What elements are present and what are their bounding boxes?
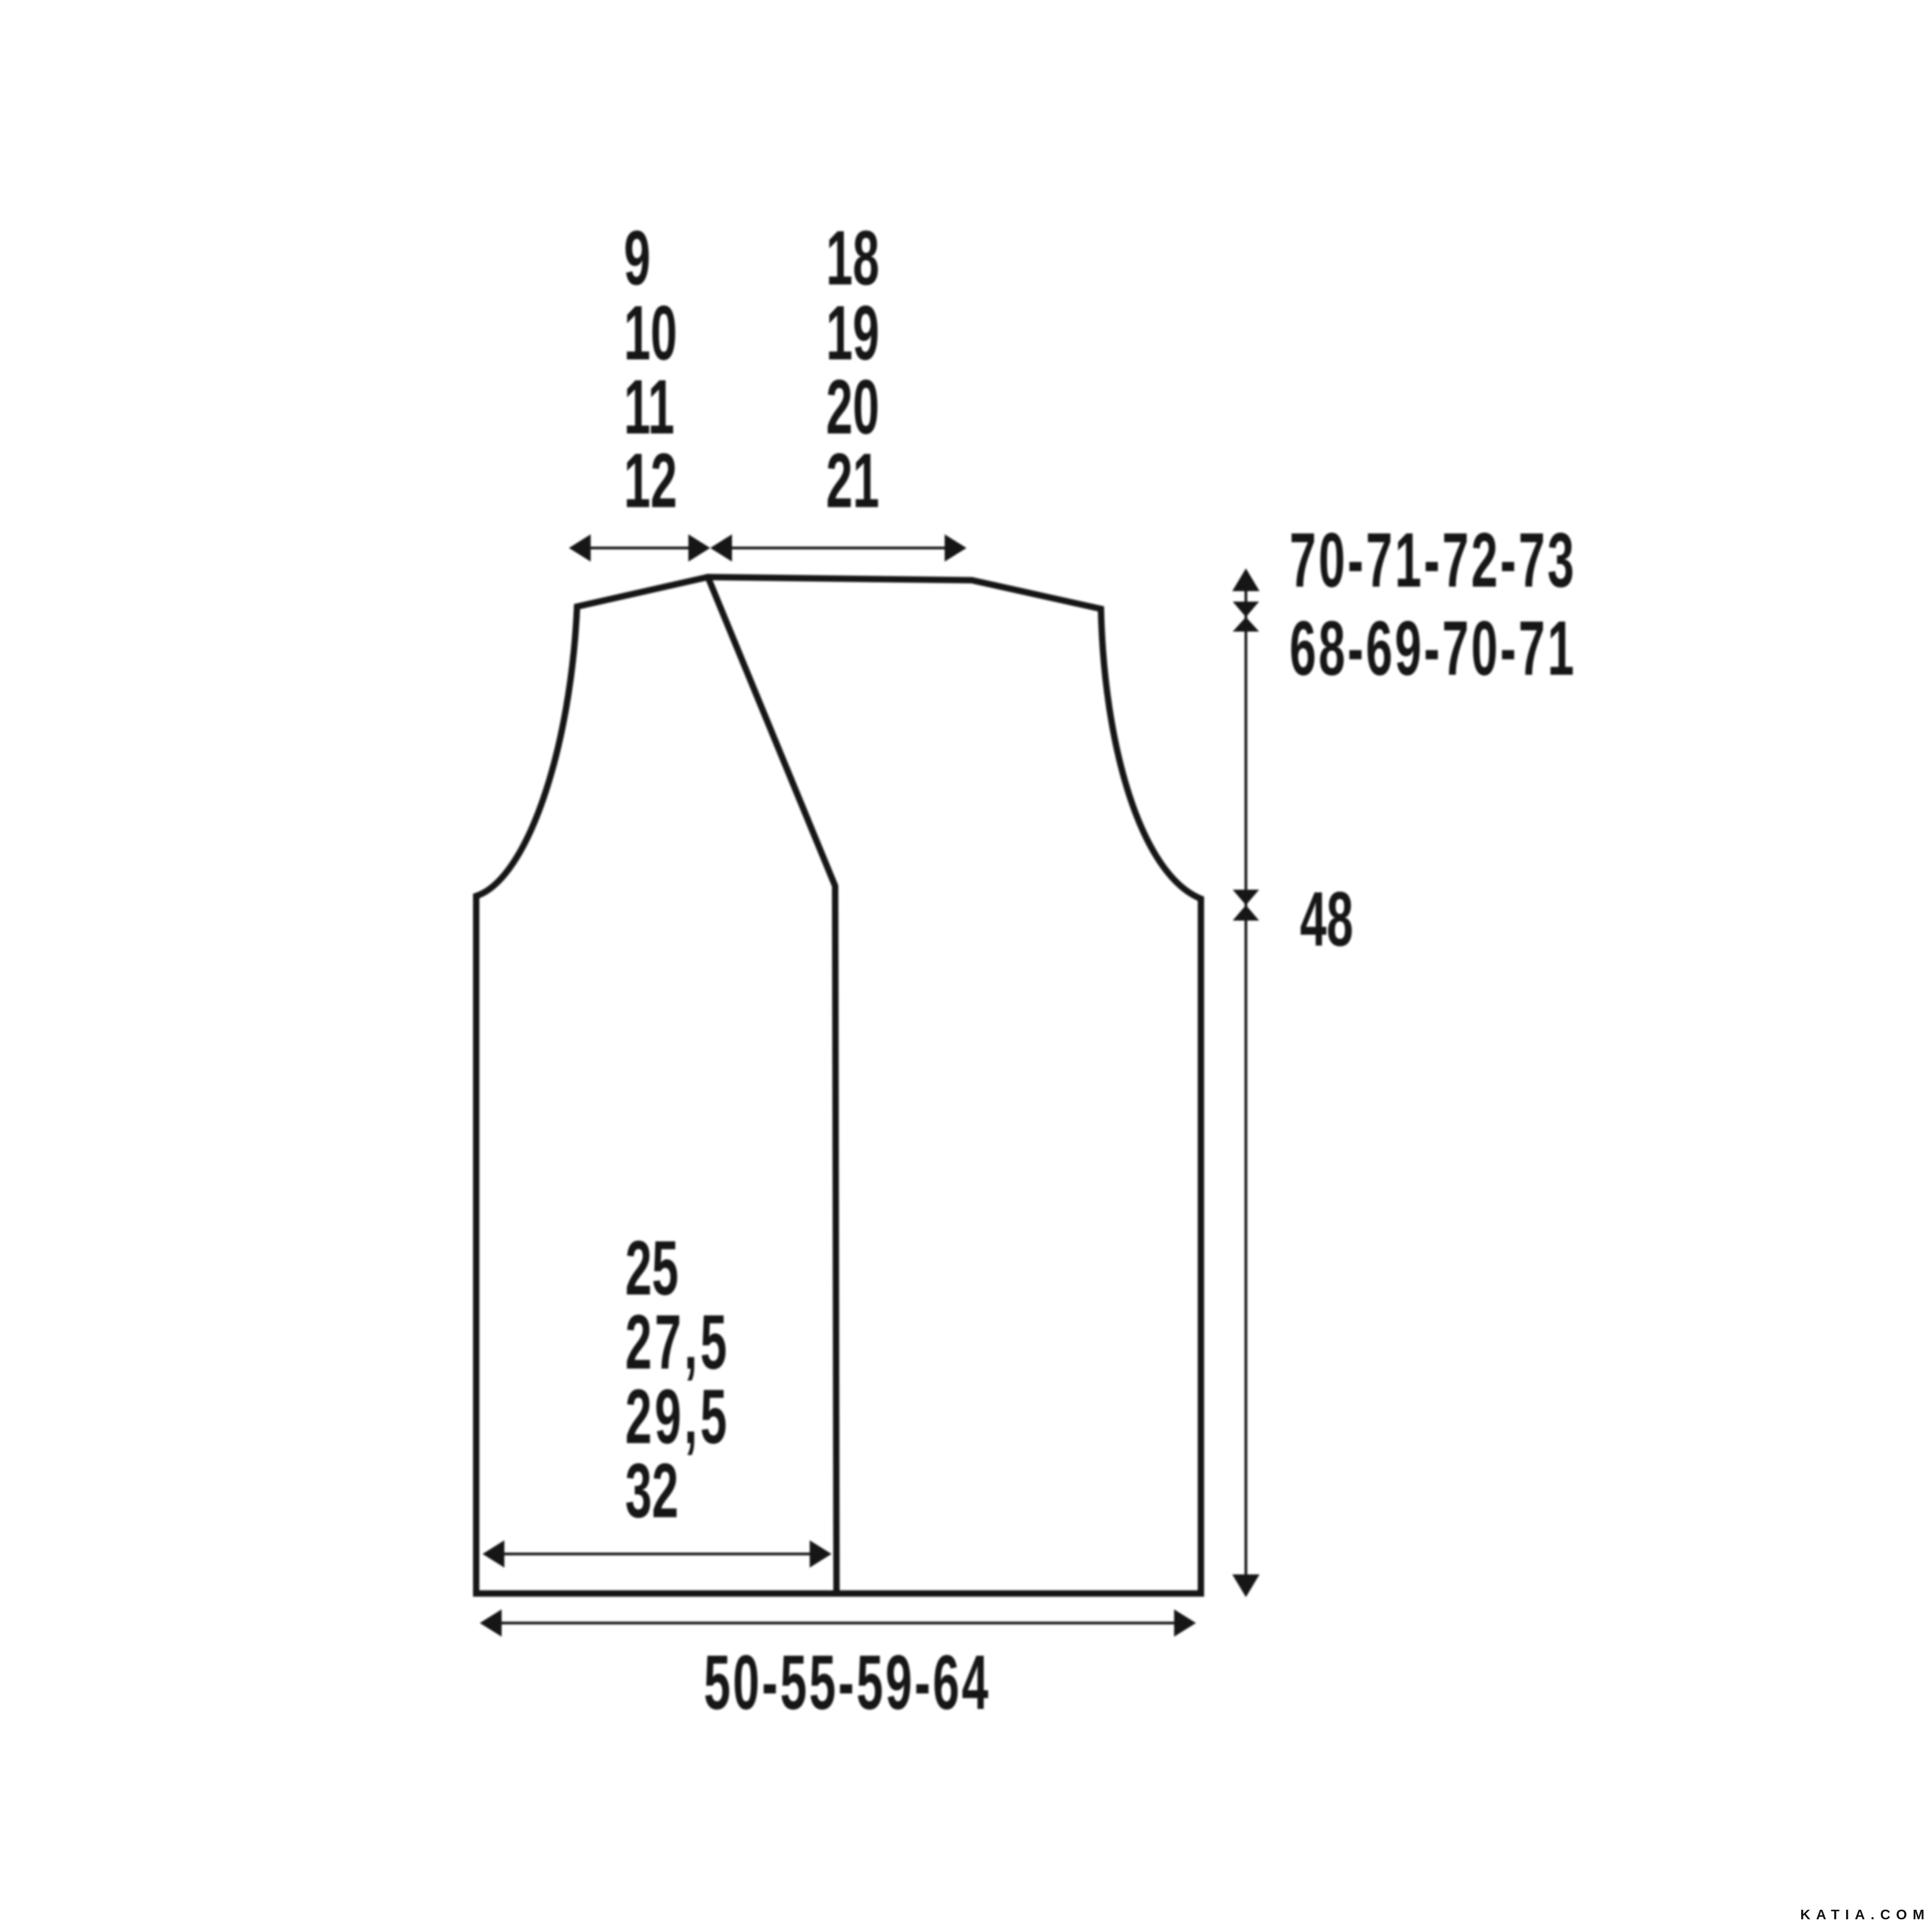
svg-text:68-69-70-71: 68-69-70-71 <box>1290 605 1576 691</box>
svg-text:70-71-72-73: 70-71-72-73 <box>1290 517 1576 603</box>
svg-text:27,5: 27,5 <box>625 1299 730 1385</box>
svg-text:25: 25 <box>625 1225 678 1311</box>
svg-text:32: 32 <box>625 1447 678 1534</box>
svg-text:KATIA.COM: KATIA.COM <box>1800 1907 1930 1922</box>
svg-text:18: 18 <box>826 214 879 301</box>
svg-text:19: 19 <box>826 289 879 376</box>
svg-text:12: 12 <box>624 437 677 523</box>
svg-text:10: 10 <box>624 289 677 376</box>
svg-text:48: 48 <box>1300 876 1353 962</box>
svg-text:50-55-59-64: 50-55-59-64 <box>704 1639 991 1725</box>
svg-text:29,5: 29,5 <box>625 1373 730 1459</box>
svg-text:21: 21 <box>826 437 879 523</box>
svg-text:9: 9 <box>624 214 651 301</box>
